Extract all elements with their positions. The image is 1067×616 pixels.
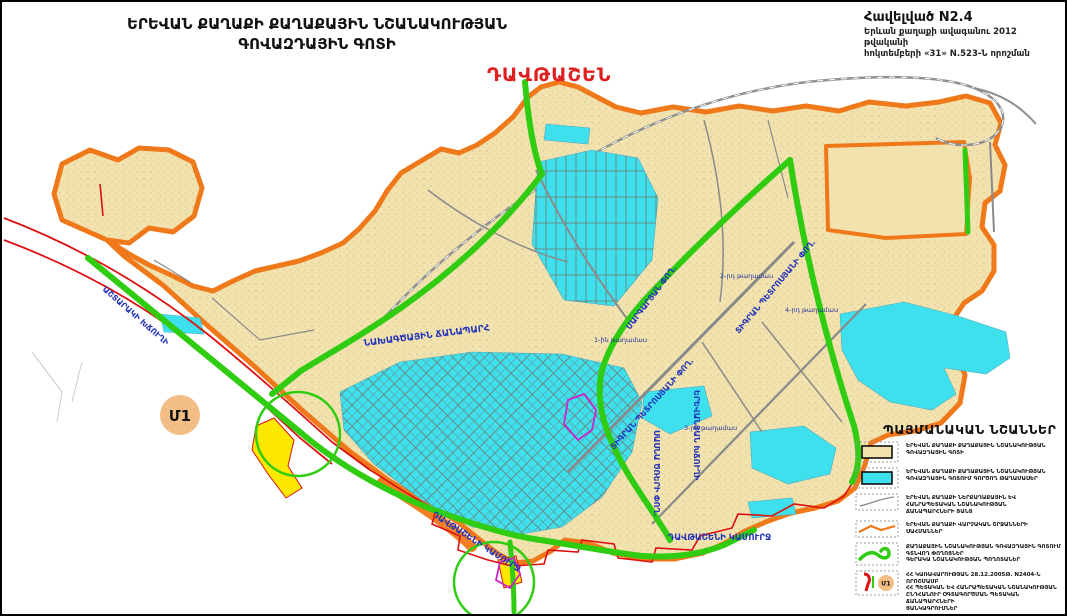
swatch-state-road-m1-icon: Մ1: [855, 570, 901, 596]
legend-item-zone: ԵՐԵՎԱՆ ՔԱՂԱՔԻ ՔԱՂԱՔԱՅԻՆ ՆՇԱՆԱԿՈՒԹՅԱՆԳՈՎԱ…: [855, 441, 1063, 463]
block-label-2: 2-րդ թաղամաս: [720, 272, 773, 280]
district-name-label: ԴԱՎԹԱՇԵՆ: [487, 64, 611, 86]
block-label-4: 4-րդ թաղամաս: [785, 306, 838, 314]
block-label-1: 1-ին թաղամաս: [594, 336, 647, 344]
metro-marker: Մ1: [160, 395, 200, 435]
street-label-davtashen-bridge-east: ԴԱՎԹԱՇԵՆԻ ԿԱՄՈՒՐՋ: [668, 533, 771, 543]
legend-item-active-blocks: ԵՐԵՎԱՆ ՔԱՂԱՔԻ ՔԱՂԱՔԱՅԻՆ ՆՇԱՆԱԿՈՒԹՅԱՆԳՈՎԱ…: [855, 467, 1063, 489]
green-northeast-stub: [965, 150, 968, 232]
street-label-yerevanyan: ԵՐԵՎԱՆՅԱՆ ԽՃՈՒՂԻ: [692, 390, 701, 481]
legend-item-green-streets: ՔԱՂԱՔԱՅԻՆ ՆՇԱՆԱԿՈՒԹՅԱՆ ԳՈՎԱԶԴԱՅԻՆ ԳՈՏՈՒՄ…: [855, 542, 1063, 566]
swatch-green-street-icon: [855, 542, 901, 566]
annex-note: Հավելված N2.4 Երևան քաղաքի ավագանու 2012…: [864, 10, 1059, 60]
annex-title: Հավելված N2.4: [864, 10, 1059, 25]
district-lobe-northeast: [826, 142, 970, 238]
legend-item-road-network: ԵՐԵՎԱՆ ՔԱՂԱՔԻ ՆԵՐՔԱՂԱՔԱՅԻՆ ԵՎ ՀԱՆՐԱՊԵՏԱԿ…: [855, 493, 1063, 516]
page-title-line1: ԵՐԵՎԱՆ ՔԱՂԱՔԻ ՔԱՂԱՔԱՅԻՆ ՆՇԱՆԱԿՈՒԹՅԱՆ: [112, 14, 522, 34]
legend-item-admin-borders: ԵՐԵՎԱՆ ՔԱՂԱՔԻ ՎԱՐՉԱԿԱՆ ՇՐՋԱՆՆԵՐԻ ՍԱՀՄԱՆՆ…: [855, 520, 1063, 538]
legend-item-state-roads: Մ1 ՀՀ ԿԱՌԱՎԱՐՈՒԹՅԱՆ 28.12.2005Թ. N2404-Ն…: [855, 570, 1063, 613]
legend-item-text: ՀՀ ԿԱՌԱՎԱՐՈՒԹՅԱՆ 28.12.2005Թ. N2404-Ն ՈՐ…: [906, 570, 1063, 613]
outside-street-2: [72, 362, 82, 402]
legend-item-text: ԵՐԵՎԱՆ ՔԱՂԱՔԻ ՔԱՂԱՔԱՅԻՆ ՆՇԱՆԱԿՈՒԹՅԱՆԳՈՎԱ…: [906, 467, 1045, 483]
legend-item-text: ԵՐԵՎԱՆ ՔԱՂԱՔԻ ՔԱՂԱՔԱՅԻՆ ՆՇԱՆԱԿՈՒԹՅԱՆԳՈՎԱ…: [906, 441, 1045, 457]
swatch-gray-road-icon: [855, 493, 901, 511]
map-sheet: Մ1 ԱՇՏԱՐԱԿԻ ԽՃՈՒՂԻ ՆԱԽԱԳԾԱՅԻՆ ՃԱՆԱՊԱՐՀ Մ…: [0, 0, 1067, 616]
legend-m1-badge: Մ1: [881, 579, 891, 587]
outside-street-1: [32, 352, 62, 422]
page-title: ԵՐԵՎԱՆ ՔԱՂԱՔԻ ՔԱՂԱՔԱՅԻՆ ՆՇԱՆԱԿՈՒԹՅԱՆ ԳՈՎ…: [112, 14, 522, 55]
page-title-line2: ԳՈՎԱԶԴԱՅԻՆ ԳՈՏԻ: [112, 34, 522, 54]
legend: ՊԱՅՄԱՆԱԿԱՆ ՆՇԱՆՆԵՐ ԵՐԵՎԱՆ ՔԱՂԱՔԻ ՔԱՂԱՔԱՅ…: [855, 422, 1063, 616]
swatch-beige-zone-icon: [855, 441, 901, 463]
legend-title: ՊԱՅՄԱՆԱԿԱՆ ՆՇԱՆՆԵՐ: [883, 422, 1063, 437]
legend-item-text: ՔԱՂԱՔԱՅԻՆ ՆՇԱՆԱԿՈՒԹՅԱՆ ԳՈՎԱԶԴԱՅԻՆ ԳՈՏՈՒՄ…: [906, 542, 1063, 565]
swatch-cyan-zone-icon: [855, 467, 901, 489]
street-label-sasna-tsrer: ՍԱՍՆԱ ԾՌԵՐԻ ՓՈՂ.: [652, 430, 661, 516]
metro-label: Մ1: [169, 407, 191, 425]
annex-line2: հոկտեմբերի «31» N.523-Ն որոշման: [864, 49, 1059, 60]
legend-item-text: ԵՐԵՎԱՆ ՔԱՂԱՔԻ ՎԱՐՉԱԿԱՆ ՇՐՋԱՆՆԵՐԻ ՍԱՀՄԱՆՆ…: [906, 520, 1063, 536]
block-label-3: 3-րդ թաղամաս: [684, 424, 737, 432]
legend-item-text: ԵՐԵՎԱՆ ՔԱՂԱՔԻ ՆԵՐՔԱՂԱՔԱՅԻՆ ԵՎ ՀԱՆՐԱՊԵՏԱԿ…: [906, 493, 1063, 516]
annex-line1: Երևան քաղաքի ավագանու 2012 թվականի: [864, 27, 1059, 49]
green-bridge-route: [510, 542, 514, 612]
swatch-orange-border-icon: [855, 520, 901, 538]
